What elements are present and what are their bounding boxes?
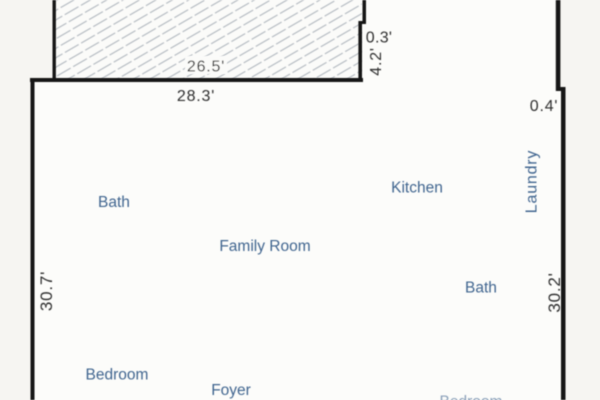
svg-text:0.4': 0.4' xyxy=(530,98,559,115)
svg-text:Bath: Bath xyxy=(465,280,497,297)
svg-text:Kitchen: Kitchen xyxy=(391,180,443,197)
svg-text:Foyer: Foyer xyxy=(211,382,251,399)
svg-text:30.2': 30.2' xyxy=(545,272,564,312)
svg-text:Family Room: Family Room xyxy=(219,238,310,255)
svg-text:30.7': 30.7' xyxy=(37,271,56,311)
svg-text:Bedroom: Bedroom xyxy=(86,367,149,384)
svg-text:28.3': 28.3' xyxy=(177,88,215,105)
svg-text:Bedroom: Bedroom xyxy=(440,394,503,400)
svg-text:26.5': 26.5' xyxy=(187,59,225,76)
svg-text:Laundry: Laundry xyxy=(524,150,541,213)
svg-text:Bath: Bath xyxy=(98,194,130,211)
svg-text:0.3': 0.3' xyxy=(366,30,393,47)
svg-text:4.2': 4.2' xyxy=(368,47,385,76)
